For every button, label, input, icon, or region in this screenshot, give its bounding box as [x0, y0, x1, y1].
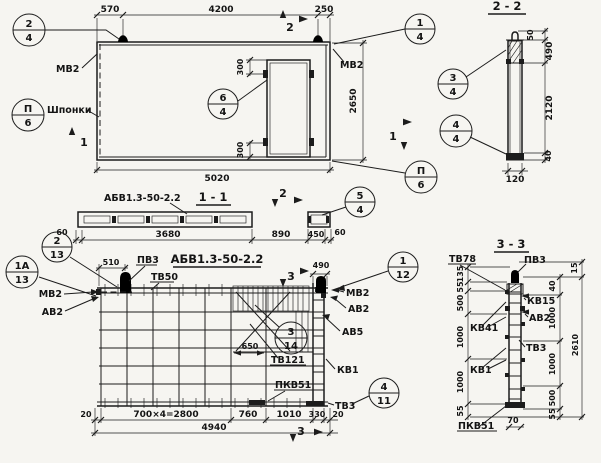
dim-330: 330 — [309, 410, 326, 419]
dim-700x4: 700×4=2800 — [133, 410, 198, 420]
svg-text:13: 13 — [15, 275, 29, 286]
svg-text:П: П — [417, 166, 425, 177]
svg-text:14: 14 — [284, 341, 298, 352]
dim-4200: 4200 — [208, 5, 233, 15]
svg-text:4: 4 — [26, 33, 33, 44]
svg-text:3: 3 — [288, 327, 295, 338]
svg-text:6: 6 — [25, 118, 32, 129]
dim-5020: 5020 — [204, 174, 229, 184]
label-av2-elev-left: АВ2 — [42, 307, 63, 318]
svg-text:11: 11 — [377, 396, 391, 407]
dim-490-22: 490 — [545, 42, 555, 61]
svg-text:6: 6 — [220, 93, 227, 104]
loop-right — [316, 276, 326, 293]
dim-1000-left-b: 1000 — [456, 370, 465, 393]
label-kv41: КВ41 — [470, 323, 498, 334]
dim-70: 70 — [507, 416, 519, 425]
loop-3-3 — [511, 270, 519, 283]
dim-2650: 2650 — [349, 88, 359, 113]
dim-1000-right-a: 1000 — [548, 306, 557, 329]
loop-left — [120, 272, 131, 293]
dim-300-top: 300 — [236, 58, 245, 75]
dim-55-right: 55 — [548, 408, 557, 420]
section-2-2-title: 2 - 2 — [493, 0, 522, 13]
dim-650: 650 — [242, 342, 259, 351]
label-mv2-elev-right: МВ2 — [346, 288, 369, 299]
svg-text:4: 4 — [220, 107, 227, 118]
dim-500-left: 500 — [456, 294, 465, 311]
section-2-label-top: 2 — [286, 21, 294, 34]
label-pkv51-elev: ПКВ51 — [275, 380, 311, 391]
dim-760: 760 — [239, 410, 258, 420]
label-pv3-elev: ПВ3 — [137, 255, 159, 266]
svg-text:1: 1 — [400, 256, 407, 267]
svg-text:4: 4 — [357, 205, 364, 216]
svg-text:П: П — [24, 104, 32, 115]
dim-2610: 2610 — [571, 333, 580, 356]
drawing-sheet: 570 4200 250 300 300 2650 — [0, 0, 601, 463]
label-mv2-left: МВ2 — [56, 64, 79, 75]
dim-1000-left-a: 1000 — [456, 325, 465, 348]
label-av2-elev-right: АВ2 — [348, 304, 369, 315]
section-3-3-title: 3 - 3 — [497, 237, 526, 251]
dim-50: 50 — [526, 29, 535, 41]
dim-55-bottom-left: 55 — [456, 405, 465, 417]
dim-55-top-left: 55 — [456, 281, 465, 293]
svg-text:4: 4 — [453, 120, 460, 131]
dim-250: 250 — [315, 5, 334, 15]
dim-500-right: 500 — [548, 389, 557, 406]
section-1-1-mark-label: АБВ1.3-50-2.2 — [104, 193, 181, 204]
label-tv121: ТВ121 — [271, 355, 305, 366]
svg-text:1: 1 — [417, 18, 424, 29]
section-3-label-bottom: 3 — [297, 425, 305, 438]
dim-890: 890 — [272, 230, 291, 240]
elevation-title: АБВ1.3-50-2.2 — [171, 252, 264, 266]
dim-1010: 1010 — [276, 410, 301, 420]
dim-3680: 3680 — [155, 230, 180, 240]
label-kv15: КВ15 — [527, 296, 555, 307]
label-kv1-elev: КВ1 — [337, 365, 359, 376]
svg-text:4: 4 — [453, 134, 460, 145]
dim-40-right: 40 — [548, 280, 557, 292]
label-tv78: ТВ78 — [449, 254, 476, 265]
section-1-1-title: 1 - 1 — [199, 190, 228, 204]
section-1-label-left: 1 — [80, 136, 88, 149]
label-shponki: Шпонки — [47, 105, 92, 116]
dim-135: 135 — [456, 265, 465, 282]
label-mv2-elev-left: МВ2 — [39, 289, 62, 300]
label-pv3-33: ПВ3 — [524, 255, 546, 266]
label-tv3-33: ТВ3 — [526, 343, 546, 354]
dim-510: 510 — [103, 258, 120, 267]
bottom-plate-3-3 — [505, 402, 525, 408]
svg-text:12: 12 — [396, 270, 410, 281]
label-av5: АВ5 — [342, 327, 363, 338]
svg-text:1А: 1А — [15, 261, 30, 272]
label-tv50: ТВ50 — [151, 272, 178, 283]
svg-text:4: 4 — [381, 382, 388, 393]
dim-450: 450 — [308, 230, 325, 239]
svg-text:13: 13 — [50, 250, 64, 261]
label-kv1-33: КВ1 — [470, 365, 492, 376]
dim-4940: 4940 — [201, 423, 226, 433]
dim-40: 40 — [544, 150, 553, 162]
dim-15: 15 — [570, 262, 579, 274]
dim-60-right: 60 — [334, 228, 346, 237]
dim-20-right: 20 — [332, 410, 344, 419]
svg-text:4: 4 — [450, 87, 457, 98]
section-1-label-right: 1 — [389, 130, 397, 143]
label-pkv51-33: ПКВ51 — [458, 421, 494, 432]
drawing-canvas: 570 4200 250 300 300 2650 — [0, 0, 601, 463]
dim-490-elev: 490 — [313, 261, 330, 270]
svg-text:2: 2 — [54, 236, 61, 247]
dim-120: 120 — [506, 175, 525, 185]
dim-300-bottom: 300 — [236, 141, 245, 158]
svg-text:6: 6 — [418, 180, 425, 191]
svg-text:5: 5 — [357, 191, 364, 202]
dim-20-left: 20 — [80, 410, 92, 419]
svg-text:4: 4 — [417, 32, 424, 43]
paper — [0, 0, 601, 463]
svg-text:2: 2 — [26, 19, 33, 30]
section-3-label-top: 3 — [287, 270, 295, 283]
dim-1000-right-b: 1000 — [548, 352, 557, 375]
bottom-plate-2-2 — [506, 153, 524, 160]
dim-570: 570 — [101, 5, 120, 15]
section-2-label-bottom: 2 — [279, 187, 287, 200]
svg-text:3: 3 — [450, 73, 457, 84]
dim-2120: 2120 — [545, 95, 555, 120]
